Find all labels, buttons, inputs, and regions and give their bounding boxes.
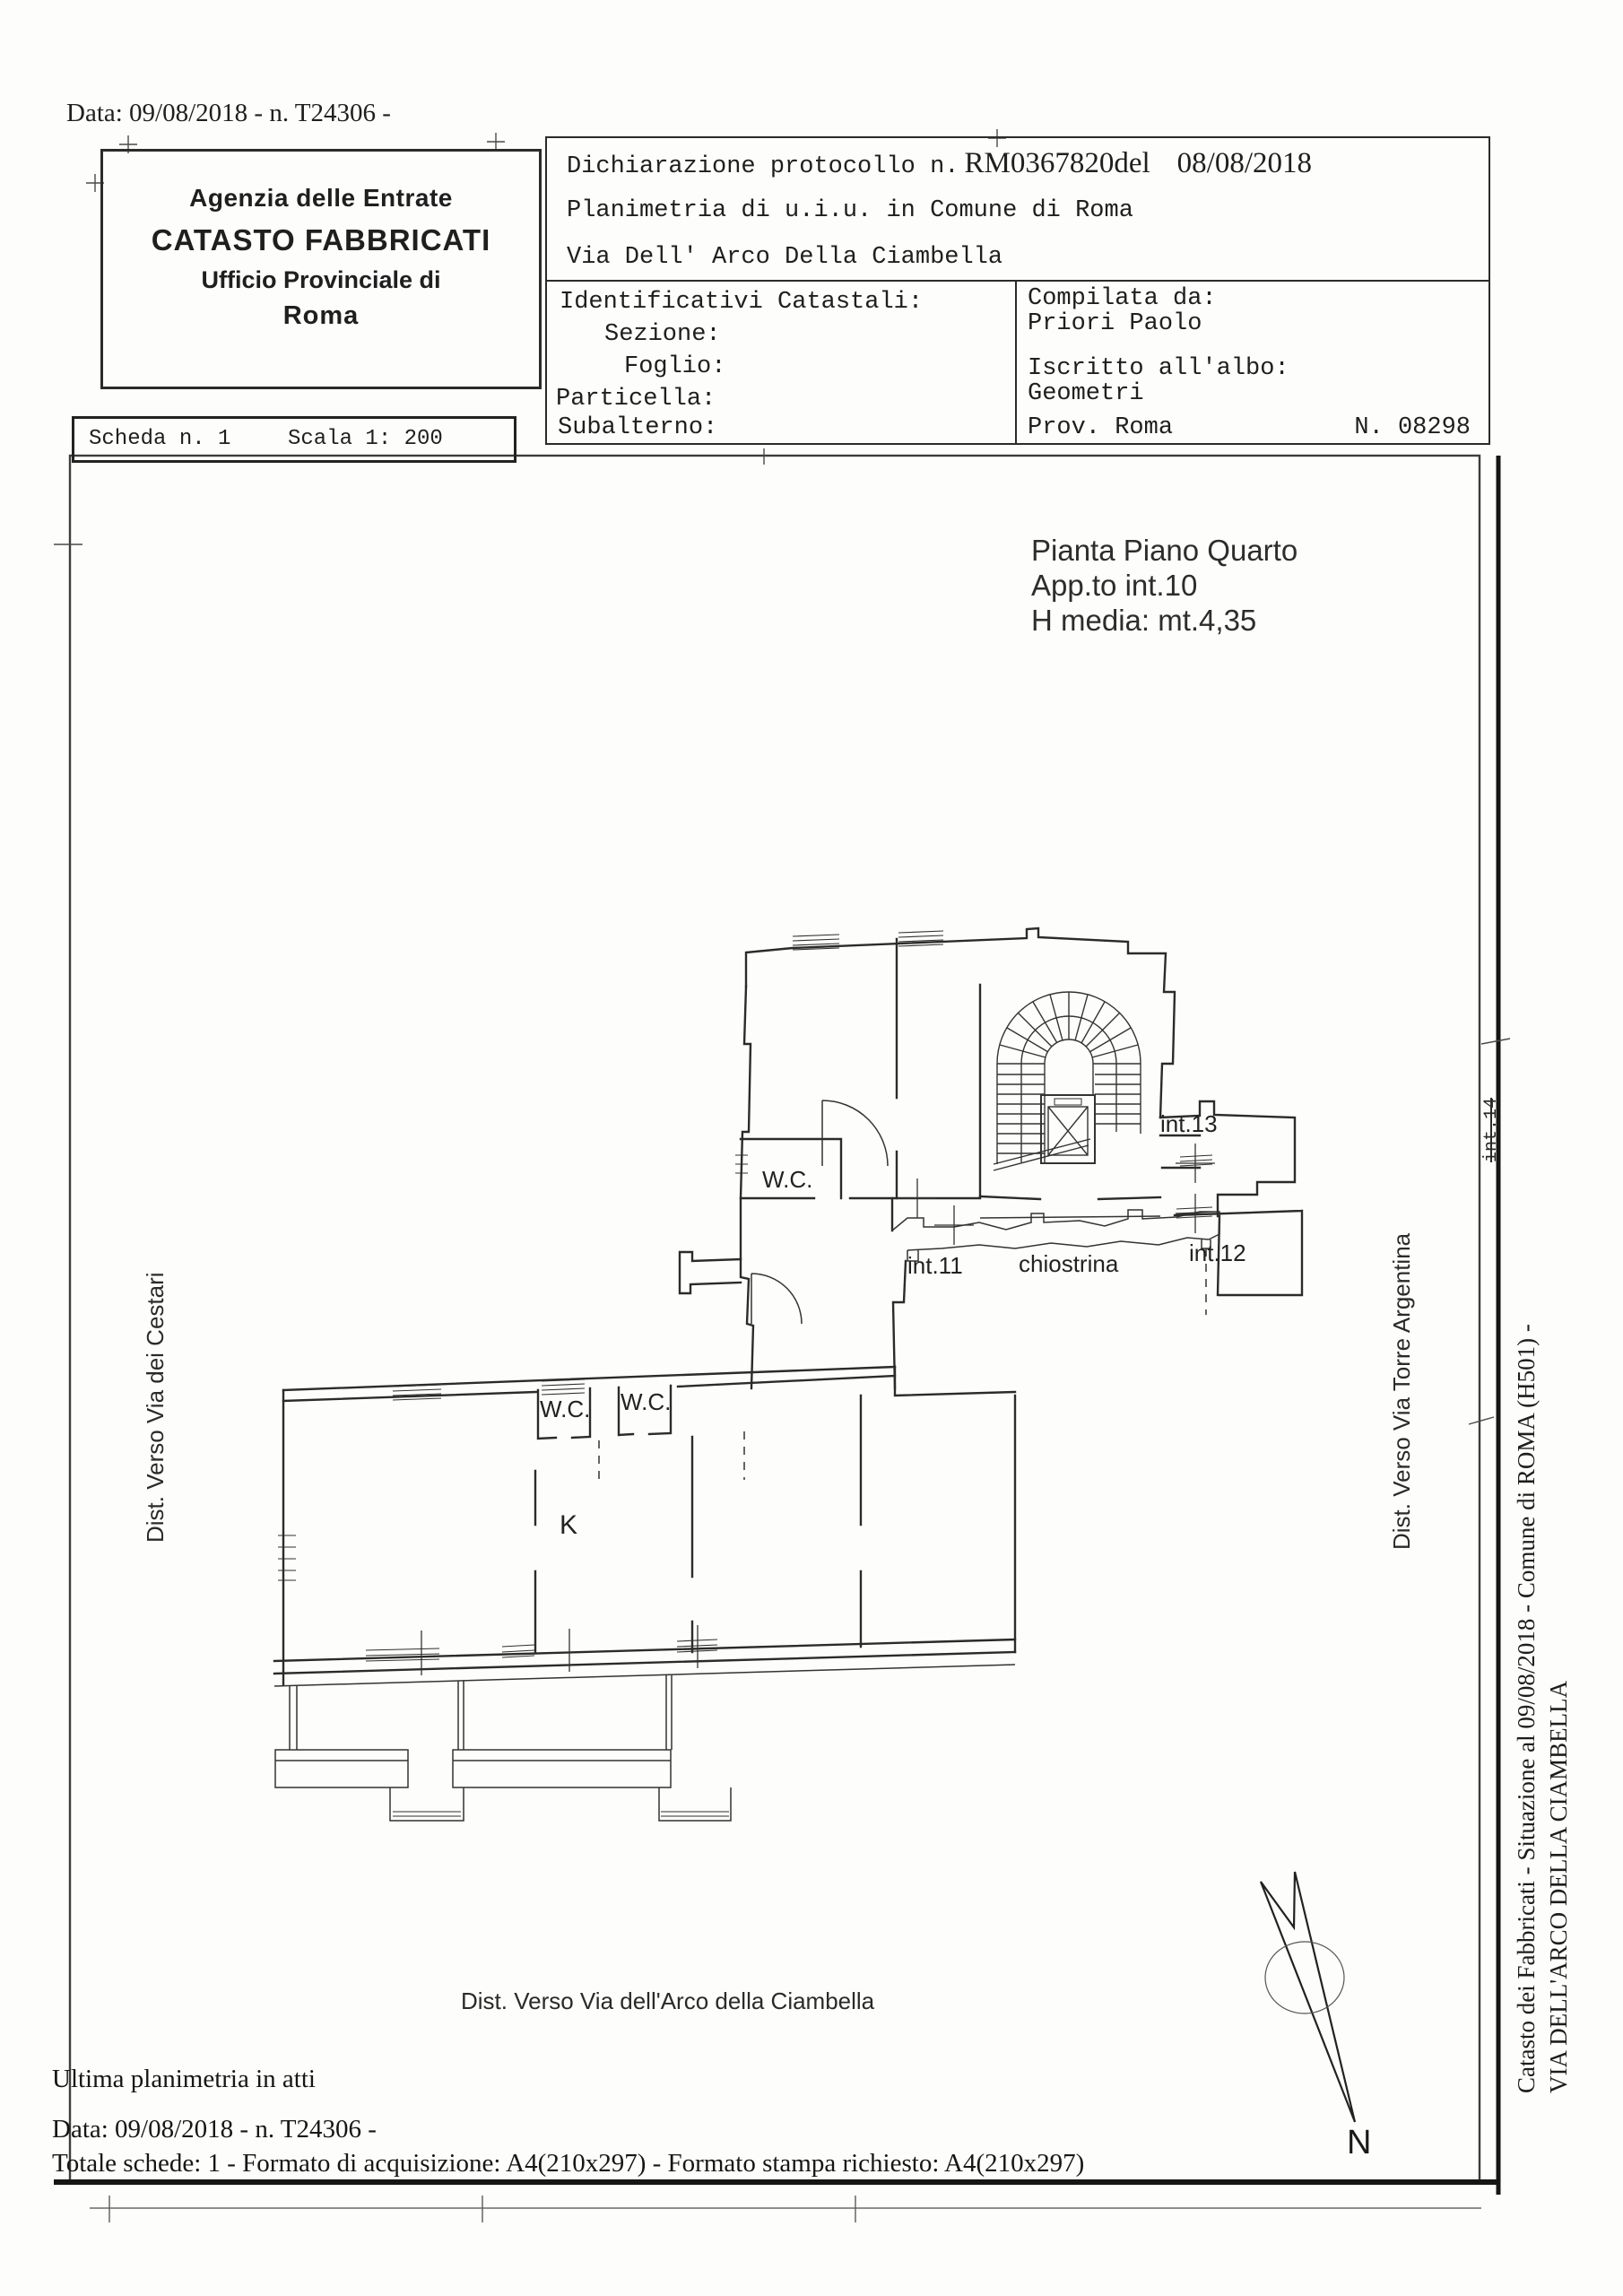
protocol-date: 08/08/2018 [1177, 147, 1312, 179]
margin-note: Catasto dei Fabbricati - Situazione al 0… [1510, 1227, 1576, 2093]
compiled-by-label: Compilata da: [1028, 285, 1217, 312]
protocol-number: RM0367820del [964, 147, 1150, 179]
agency-name: Agenzia delle Entrate [103, 184, 539, 213]
crossed-out-unit-note: int.14 [1481, 1046, 1502, 1162]
field-sezione: Sezione: [604, 321, 721, 348]
plan-title-unit: App.to int.10 [1031, 568, 1298, 603]
field-particella: Particella: [556, 386, 716, 413]
plan-title-height: H media: mt.4,35 [1031, 603, 1298, 638]
document-date-line: Data: 09/08/2018 - n. T24306 - [66, 99, 391, 128]
plan-title-floor: Pianta Piano Quarto [1031, 533, 1298, 568]
scale-value: Scala 1: 200 [288, 427, 443, 451]
register-number: N. 08298 [1354, 414, 1471, 441]
field-subalterno: Subalterno: [558, 414, 717, 441]
cadastre-title: CATASTO FABBRICATI [103, 223, 539, 257]
footer-last-plan-line: Ultima planimetria in atti [52, 2065, 316, 2094]
plan-frame [54, 448, 1510, 2222]
footer-format-line: Totale schede: 1 - Formato di acquisizio… [52, 2149, 1084, 2179]
sheet-scale-box: Scheda n. 1 Scala 1: 200 [72, 416, 516, 463]
declaration-box: Dichiarazione protocollo n.RM0367820del0… [545, 136, 1490, 445]
unit-label-int13: int.13 [1160, 1110, 1218, 1138]
field-foglio: Foglio: [624, 353, 725, 380]
protocol-line: Dichiarazione protocollo n.RM0367820del0… [567, 147, 1312, 180]
street-line: Via Dell' Arco Della Ciambella [567, 244, 1002, 271]
margin-note-line1: Catasto dei Fabbricati - Situazione al 0… [1510, 1227, 1542, 2093]
room-label-wc-left: W.C. [540, 1396, 590, 1423]
identifiers-title: Identificativi Catastali: [560, 289, 923, 316]
elevator-shaft [1041, 1095, 1095, 1163]
office-city: Roma [103, 301, 539, 331]
unit-label-int12: int.12 [1189, 1239, 1246, 1267]
staircase [994, 992, 1141, 1170]
sheet-number: Scheda n. 1 [89, 427, 230, 451]
room-label-wc-right: W.C. [621, 1388, 671, 1416]
provincial-office-label: Ufficio Provinciale di [103, 266, 539, 294]
window-hatches [278, 931, 1212, 1821]
courtyard-label-chiostrina: chiostrina [1019, 1250, 1118, 1278]
room-label-wc-upper: W.C. [762, 1166, 812, 1194]
declaration-column-divider [1015, 280, 1017, 443]
footer-date-line: Data: 09/08/2018 - n. T24306 - [52, 2115, 377, 2144]
north-arrow [1261, 1872, 1355, 2122]
planimetry-line: Planimetria di u.i.u. in Comune di Roma [567, 197, 1133, 224]
margin-note-line2: VIA DELL'ARCO DELLA CIAMBELLA [1542, 1227, 1575, 2093]
unit-label-int11: int.11 [907, 1252, 963, 1280]
register-name: Geometri [1028, 380, 1144, 407]
plan-title-block: Pianta Piano Quarto App.to int.10 H medi… [1031, 533, 1298, 638]
cadastral-document-page: Data: 09/08/2018 - n. T24306 - Agenzia d… [0, 0, 1623, 2296]
north-label: N [1347, 2124, 1371, 2162]
plan-walls [274, 928, 1302, 1684]
direction-label-left: Dist. Verso Via dei Cestari [142, 1299, 169, 1543]
declaration-divider [547, 280, 1488, 282]
protocol-prefix: Dichiarazione protocollo n. [567, 153, 959, 180]
agency-header-box: Agenzia delle Entrate CATASTO FABBRICATI… [100, 149, 542, 389]
register-label: Iscritto all'albo: [1028, 355, 1289, 382]
direction-label-bottom: Dist. Verso Via dell'Arco della Ciambell… [461, 1987, 874, 2015]
room-label-kitchen: K [560, 1510, 577, 1541]
province-label: Prov. Roma [1028, 414, 1173, 441]
direction-label-right: Dist. Verso Via Torre Argentina [1388, 1270, 1416, 1550]
plan-thin-lines [274, 1100, 1219, 1821]
compiler-name: Priori Paolo [1028, 310, 1202, 337]
